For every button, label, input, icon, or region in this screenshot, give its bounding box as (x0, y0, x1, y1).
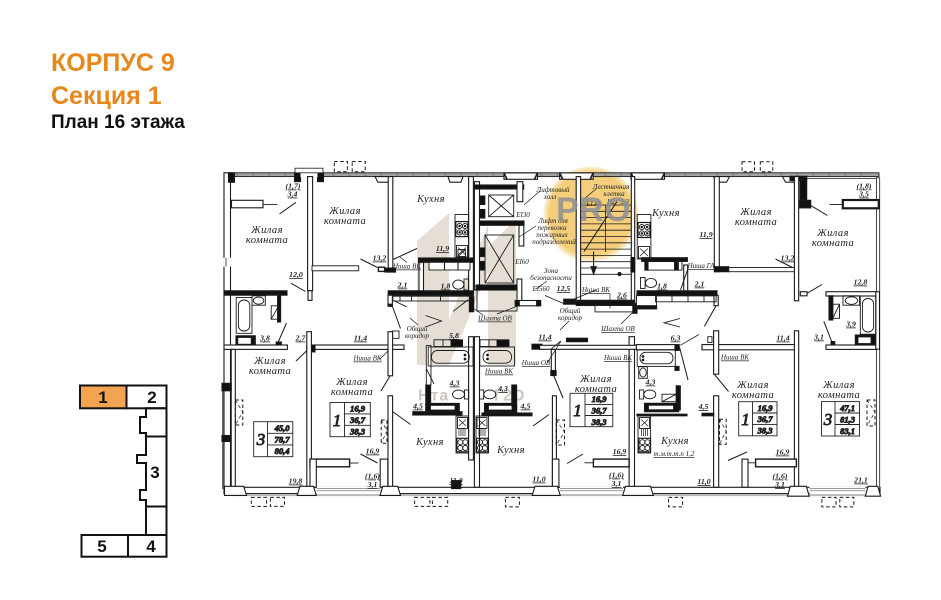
svg-text:16,9: 16,9 (758, 403, 774, 413)
svg-text:холл: холл (543, 193, 556, 201)
svg-text:38,3: 38,3 (591, 417, 608, 427)
svg-text:11,9: 11,9 (436, 244, 449, 253)
svg-text:38,3: 38,3 (349, 427, 366, 437)
svg-text:1: 1 (573, 401, 582, 420)
svg-text:EI560: EI560 (531, 285, 550, 293)
svg-text:EI30: EI30 (515, 211, 530, 219)
svg-text:Ниша ГА: Ниша ГА (687, 262, 716, 270)
svg-text:4,5: 4,5 (520, 402, 531, 411)
svg-text:4,5: 4,5 (698, 402, 709, 411)
svg-text:16,9: 16,9 (613, 447, 627, 456)
svg-text:комната: комната (331, 387, 373, 398)
svg-text:2,1: 2,1 (694, 280, 705, 289)
svg-text:Ниша ВК: Ниша ВК (392, 263, 421, 271)
svg-text:3,1: 3,1 (813, 333, 824, 342)
svg-text:подразделений: подразделений (532, 238, 576, 246)
svg-text:коридор: коридор (558, 314, 583, 322)
svg-text:Секция 1: Секция 1 (51, 82, 162, 110)
svg-text:3: 3 (256, 430, 266, 449)
svg-text:12,8: 12,8 (854, 278, 868, 287)
svg-text:1: 1 (333, 411, 342, 430)
svg-text:КОРПУС 9: КОРПУС 9 (51, 49, 175, 77)
svg-text:19,8: 19,8 (289, 477, 303, 486)
svg-text:2,1: 2,1 (397, 281, 408, 290)
svg-text:3,1: 3,1 (367, 480, 378, 489)
svg-text:План 16 этажа: План 16 этажа (51, 112, 185, 133)
svg-text:PRO: PRO (556, 191, 631, 229)
svg-text:11,4: 11,4 (354, 334, 367, 343)
svg-text:Кухня: Кухня (496, 445, 525, 456)
svg-text:16,9: 16,9 (350, 404, 366, 414)
svg-text:Ниша ВК: Ниша ВК (581, 286, 610, 294)
svg-text:комната: комната (249, 366, 291, 377)
svg-text:4,3: 4,3 (645, 378, 656, 387)
svg-text:Кухня: Кухня (651, 208, 680, 219)
svg-text:45,0: 45,0 (274, 423, 291, 433)
svg-text:комната: комната (246, 235, 288, 246)
svg-text:Шахта ОВ: Шахта ОВ (477, 315, 512, 323)
svg-text:83,1: 83,1 (840, 426, 855, 436)
svg-text:11,0: 11,0 (449, 476, 462, 485)
svg-text:Кухня: Кухня (416, 194, 445, 205)
svg-text:коридор: коридор (405, 332, 430, 340)
svg-text:комната: комната (324, 216, 366, 227)
svg-text:безопасности: безопасности (530, 274, 572, 282)
svg-text:Кухня: Кухня (660, 436, 689, 447)
svg-text:2,6: 2,6 (616, 291, 627, 300)
svg-text:12,0: 12,0 (289, 270, 303, 279)
svg-text:Ниша ВК: Ниша ВК (603, 354, 632, 362)
svg-text:4,3: 4,3 (497, 384, 508, 393)
svg-text:Шахта ОВ: Шахта ОВ (600, 325, 635, 333)
svg-text:36,7: 36,7 (757, 414, 774, 424)
svg-text:11,0: 11,0 (697, 477, 710, 486)
svg-text:12,5: 12,5 (557, 284, 571, 293)
svg-text:21,1: 21,1 (853, 476, 868, 485)
svg-text:5: 5 (97, 537, 106, 556)
svg-text:16,9: 16,9 (592, 394, 608, 404)
svg-text:комната: комната (812, 238, 854, 249)
svg-text:EI60: EI60 (514, 258, 529, 266)
svg-text:11,4: 11,4 (538, 333, 551, 342)
svg-text:Ниша ВК: Ниша ВК (720, 354, 749, 362)
svg-text:36,7: 36,7 (349, 415, 366, 425)
svg-text:1: 1 (741, 410, 750, 429)
svg-text:11,0: 11,0 (532, 475, 545, 484)
svg-text:13,2: 13,2 (781, 254, 795, 263)
svg-text:3: 3 (823, 410, 833, 429)
svg-text:6,3: 6,3 (671, 334, 681, 343)
svg-text:38,3: 38,3 (757, 426, 774, 436)
svg-text:2,7: 2,7 (295, 334, 307, 343)
svg-text:81,3: 81,3 (840, 414, 856, 424)
svg-text:36,7: 36,7 (591, 406, 608, 416)
svg-text:78,7: 78,7 (275, 435, 291, 445)
svg-text:Ниша ВК: Ниша ВК (484, 368, 513, 376)
svg-text:3: 3 (150, 463, 159, 482)
svg-text:3,8: 3,8 (259, 334, 270, 343)
svg-text:3,1: 3,1 (774, 480, 785, 489)
svg-text:3,9: 3,9 (845, 320, 856, 329)
svg-text:т.м.т.т.п 1,2: т.м.т.т.п 1,2 (654, 450, 695, 458)
svg-text:11,9: 11,9 (699, 230, 712, 239)
svg-text:4,3: 4,3 (449, 379, 460, 388)
svg-text:5,8: 5,8 (449, 331, 459, 340)
svg-text:комната: комната (732, 390, 774, 401)
svg-text:11,4: 11,4 (776, 334, 789, 343)
svg-text:1,8: 1,8 (441, 282, 451, 291)
svg-text:Кухня: Кухня (415, 437, 444, 448)
svg-text:13,2: 13,2 (373, 254, 387, 263)
svg-text:3,1: 3,1 (611, 479, 622, 488)
svg-text:комната: комната (818, 390, 860, 401)
svg-text:1: 1 (98, 388, 107, 407)
svg-text:Ниша ВК: Ниша ВК (352, 355, 381, 363)
svg-text:80,4: 80,4 (275, 446, 290, 456)
svg-text:3,5: 3,5 (858, 190, 869, 199)
svg-text:4: 4 (146, 537, 156, 556)
svg-text:4,5: 4,5 (412, 402, 423, 411)
svg-text:3,4: 3,4 (287, 190, 298, 199)
svg-text:47,1: 47,1 (839, 403, 855, 413)
svg-text:Ниша ОВ: Ниша ОВ (521, 359, 551, 367)
svg-text:комната: комната (735, 217, 777, 228)
svg-text:1,8: 1,8 (657, 282, 667, 291)
svg-text:16,9: 16,9 (776, 448, 790, 457)
svg-text:16,9: 16,9 (366, 447, 380, 456)
svg-text:2: 2 (147, 388, 156, 407)
